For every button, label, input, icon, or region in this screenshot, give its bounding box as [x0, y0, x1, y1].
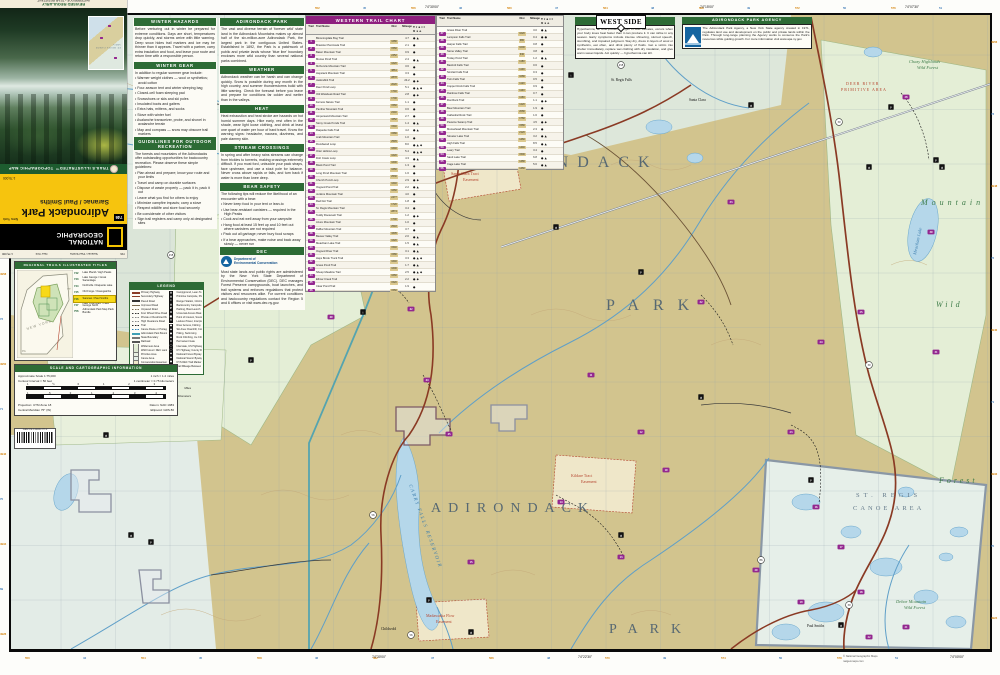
trail-use-icons: ●▲	[413, 249, 435, 253]
barcode-lines	[17, 432, 53, 443]
scale-tick: 3	[154, 383, 155, 386]
trail-mileage: 1.1	[529, 99, 541, 102]
trail-row: 4Moose Pond Trail16202.4●▲	[306, 56, 435, 63]
trail-mileage: 3.6	[401, 65, 413, 68]
section-body: Most state lands and public rights are a…	[220, 268, 304, 308]
trail-use-icons: ●	[413, 43, 435, 47]
snippet-label: ST. REGIS CANOE AREA	[89, 43, 121, 49]
svg-text:PRIMITIVE AREA: PRIMITIVE AREA	[841, 87, 887, 92]
trail-row: 13Stony Creek Ponds Trail15401.4●▲	[306, 120, 435, 127]
route-number: 56	[372, 513, 376, 517]
svg-text:Wild Forest: Wild Forest	[904, 605, 926, 610]
pa-label: PA	[22, 349, 26, 353]
spine-region: New York	[36, 252, 48, 256]
trail-mileage: 1.9	[529, 107, 541, 110]
trail-name: Twin Falls Trail	[447, 78, 515, 81]
trail-mileage: 3.3	[401, 257, 413, 260]
legend-swatch	[131, 329, 140, 330]
trail-name: Deer Pond Loop	[316, 86, 387, 89]
trail-use-icons: ●▲	[413, 58, 435, 62]
trail-mileage: 4.3	[401, 157, 413, 160]
trail-row: 41Tooley Pond Trail11801.2●▲	[437, 55, 563, 62]
trail-badge-number: 28	[904, 95, 908, 99]
section-body: Heat exhaustion and heat stroke are haza…	[220, 113, 304, 144]
trail-name: Red Dot Trail	[316, 200, 387, 203]
poi-glyph: P	[890, 105, 892, 109]
legend-label: Permanent Gate	[177, 340, 195, 343]
trail-mileage: 4.5	[529, 121, 541, 124]
trail-name: Church Pond Loop	[316, 179, 387, 182]
trail-row: 44Twin Falls Trail11200.5●	[437, 77, 563, 84]
trail-row: 35Elbow Creek Trail15202.2●◆	[306, 276, 435, 283]
svg-text:Easement: Easement	[436, 619, 452, 624]
trail-mileage: 3.0	[529, 29, 541, 32]
trail-row: 34Sheep Meadow Trail16602.5●▲◆	[306, 269, 435, 276]
durability-note: WATERPROOF • TEAR-RESISTANT	[0, 0, 127, 2]
svg-text:St. Regis Falls: St. Regis Falls	[611, 78, 632, 82]
trail-number-badge: 56	[439, 167, 446, 171]
trail-use-icons: ●	[541, 49, 563, 53]
title-number: 744	[74, 285, 81, 288]
km-unit: Kilometers	[178, 394, 191, 398]
trail-name: St. Regis Mountain Trail	[316, 207, 387, 210]
title-number: 745	[74, 291, 81, 294]
trail-badge-number: 10	[664, 468, 668, 472]
section-header: ADIRONDACK PARK	[220, 18, 304, 26]
trail-use-icons: ●	[413, 221, 435, 225]
grid-tick-label: 4948	[991, 184, 997, 188]
map-number-badge: 746	[114, 214, 124, 221]
trail-mileage: 1.1	[401, 101, 413, 104]
series-type: TOPOGRAPHIC MAP	[9, 167, 54, 172]
poi-glyph: ▲	[619, 533, 622, 537]
poi-glyph: i	[363, 310, 364, 314]
map-cover: 746 Saranac / Paul Smiths New York 1:75,…	[0, 0, 127, 258]
trail-row: 9Old Wawbeek Road Trail17002.8●◆	[306, 92, 435, 99]
trail-chart-header: TrailTrail NameDistMileageTrail Use	[437, 16, 563, 27]
legend-label: National Forest Byway	[177, 353, 202, 356]
trail-name: Grass Pond Trail	[316, 264, 387, 267]
column-header: Trail Use	[413, 25, 435, 33]
guideline-item: • Plan ahead and prepare; know your rout…	[134, 171, 216, 181]
trail-use-icons: ●◆	[413, 178, 435, 182]
trail-row: 53High Falls Trail14408.5●▲	[437, 141, 563, 148]
bullet-list: • Warmer weight clothes — wool or synthe…	[134, 76, 216, 137]
section-header: GUIDELINES FOR OUTDOOR RECREATION	[134, 137, 216, 150]
trail-badge-number: 40	[329, 315, 333, 319]
trail-use-icons: ●▲	[541, 142, 563, 146]
bear-tip-item: • If a bear approaches, make noise and b…	[220, 238, 304, 248]
trail-mileage: 0.9	[401, 51, 413, 54]
trail-use-icons: ●	[541, 127, 563, 131]
trail-use-icons: ●	[541, 149, 563, 153]
coordinate-label: 74°15'00"	[700, 5, 714, 9]
cover-spine: 746 Saranac / Paul Smiths New York 1:75,…	[0, 250, 127, 258]
trail-name: Jackrabbit Trail	[316, 79, 387, 82]
grid-tick-label: 576	[891, 6, 896, 10]
trail-row: 23Jenkins Mountain Trail24774.0●	[306, 191, 435, 198]
legend-label: Universal Access Boat Launch	[177, 312, 203, 315]
legend-swatch	[131, 325, 140, 326]
trail-badge-number: 19	[799, 600, 803, 604]
trail-mileage: 5.4	[401, 150, 413, 153]
map-sheet: ADIRONDACK PARK ADIRONDACK PARK White Hi…	[0, 0, 1000, 675]
regional-title-row: 756Adirondack Park Map Pack Bundle	[74, 309, 115, 315]
trail-name: Baker Mountain Trail	[316, 51, 387, 54]
trail-row: 11Panther Mountain Trail22400.6●	[306, 106, 435, 113]
poi-glyph: i	[571, 73, 572, 77]
svg-text:Wild: Wild	[936, 300, 963, 309]
trail-mileage: 5.6	[529, 163, 541, 166]
grid-tick-label: 4940	[991, 328, 997, 332]
grid-tick-label: 4934	[0, 542, 6, 546]
trail-name: Sheep Meadow Trail	[316, 271, 387, 274]
grid-tick-label: 566	[489, 656, 494, 660]
gear-item: • Avalanche transceiver, probe, and shov…	[134, 118, 216, 128]
approx-scale: Approximate Scale 1:75,000	[18, 374, 56, 378]
column-header: Trail Use	[541, 17, 563, 25]
trail-name: Peavine Swamp Trail	[447, 121, 515, 124]
poi-glyph: ▲	[699, 395, 702, 399]
coordinate-label: 74°30'00"	[425, 5, 439, 9]
legend-swatch	[131, 300, 140, 301]
grid-tick-label: 4932	[991, 472, 997, 476]
legend-header: LEGEND	[130, 283, 203, 290]
trail-badge-number: 18	[859, 590, 863, 594]
trail-badge-number: 23	[789, 430, 793, 434]
trail-mileage: 2.1	[401, 44, 413, 47]
trail-use-icons: ●▲	[413, 263, 435, 267]
trail-mileage: 0.5	[529, 78, 541, 81]
trail-use-icons: ●▲	[413, 36, 435, 40]
coordinate-label: 74°30'00"	[372, 655, 386, 659]
trail-row: 51Moosehead Mountain Trail21202.3●	[437, 126, 563, 133]
section-body: Before venturing out in winter be prepar…	[134, 26, 216, 62]
trail-mileage: 1.3	[401, 164, 413, 167]
section-header: ADIRONDACK PARK AGENCY	[682, 17, 812, 24]
natgeo-frame-icon	[107, 227, 123, 247]
trail-mileage: 2.7	[401, 115, 413, 118]
trail-mileage: 4.7	[401, 37, 413, 40]
trail-badge-number: 25	[859, 310, 863, 314]
trail-row: 25St. Regis Mountain Trail28743.4●	[306, 205, 435, 212]
miles-unit: Miles	[184, 386, 191, 390]
legend-swatch	[131, 305, 140, 306]
trail-name: Meacham Lake Trail	[316, 242, 387, 245]
regional-titles-list: 742Lake Placid / High Peaks743Lake Georg…	[73, 270, 115, 358]
section-body: The vast and diverse terrain of 'forever…	[220, 26, 304, 66]
legend-label: Improved Road	[141, 304, 158, 307]
grid-tick-label: 70	[991, 544, 994, 548]
poi-glyph: ▲	[867, 165, 870, 169]
route-number: 30	[838, 120, 842, 124]
scale-tick: 1	[103, 383, 104, 386]
trail-use-icons: ●	[413, 164, 435, 168]
guideline-item: • Sign trail registers and camp only at …	[134, 217, 216, 227]
legend-label: River Access, Fishing	[177, 324, 201, 327]
ellipsoid: Ellipsoid: GRS 80	[150, 408, 174, 412]
grid-tick-label: 69	[0, 587, 3, 591]
trail-use-icons: ●	[541, 85, 563, 89]
trail-badge-number: 30	[929, 230, 933, 234]
trail-badge-number: 17	[839, 545, 843, 549]
legend-swatch	[131, 292, 140, 294]
scale-tick: 3	[134, 392, 135, 395]
trail-name: Floodwood Loop	[316, 143, 387, 146]
trail-chart-banner: WESTERN TRAIL CHART	[306, 16, 435, 24]
grid-tick-label: 47	[431, 656, 434, 660]
trail-use-icons: ●	[413, 285, 435, 289]
trail-badge-number: 16	[814, 505, 818, 509]
dec-org-name: Department of Environmental Conservation	[234, 258, 277, 265]
trail-use-icons: ●▲	[541, 28, 563, 32]
svg-text:Forest: Forest	[938, 476, 978, 485]
trail-row: 7Jackrabbit Trail202024.2●◆	[306, 78, 435, 85]
trail-badge-number: 15	[469, 560, 473, 564]
grid-tick-label: 574	[721, 656, 726, 660]
trail-use-icons: ●◆	[541, 99, 563, 103]
legend-label: Rock Climbing, Ice Climbing	[177, 336, 203, 339]
trail-row: 38Lampson Falls Trail9800.4●●	[437, 34, 563, 41]
legend-label: Hiking, Swimming	[177, 332, 197, 335]
scale-tick: 0	[70, 392, 71, 395]
trail-mileage: 1.4	[401, 122, 413, 125]
natgeo-wordmark: NATIONAL GEOGRAPHIC	[56, 230, 103, 243]
trail-use-icons: ●◆	[413, 214, 435, 218]
series-name: TRAILS ILLUSTRATED™	[55, 167, 108, 172]
trail-name: Stony Creek Ponds Trail	[316, 122, 387, 125]
scale-tick: 1	[91, 392, 92, 395]
trail-name: Flat Rock Trail	[447, 99, 515, 102]
trail-row: 26Teddy Roosevelt Trail17001.2●◆	[306, 213, 435, 220]
grid-tick-label: 49	[663, 656, 666, 660]
park-name-label: PARK	[606, 297, 703, 314]
grid-tick-label: 48	[547, 656, 550, 660]
cover-title: Adirondack Park	[4, 206, 109, 218]
legend-label: High Clearance Road	[141, 320, 165, 323]
scale-tick: ½	[52, 383, 54, 386]
trail-mileage: 1.0	[401, 136, 413, 139]
apa-logo-icon	[685, 27, 701, 47]
trail-badge-number: 12	[639, 430, 643, 434]
coordinate-label: 74°07'30"	[905, 5, 919, 9]
section-intro: The following tips will reduce the likel…	[220, 191, 304, 203]
trail-name: Grass River Trail	[447, 29, 515, 32]
legend-swatch	[131, 341, 140, 342]
trail-use-icons: ●◆	[541, 120, 563, 124]
scale-tick: 0	[78, 383, 79, 386]
trail-badge-number: 31	[934, 350, 938, 354]
legend-swatch	[131, 333, 140, 335]
trail-row: 46Rainbow Falls Trail11600.7●	[437, 91, 563, 98]
trail-use-icons: ●▲◆	[413, 150, 435, 154]
trail-name: Copper Rock Falls Trail	[447, 85, 515, 88]
grid-tick-label: 4926	[0, 632, 6, 636]
lowland-area	[11, 427, 216, 649]
series-band: TRAILS ILLUSTRATED™ TOPOGRAPHIC MAP	[0, 164, 127, 174]
poi-glyph: ▲	[940, 165, 943, 169]
canoe-area-label: CANOE AREA	[853, 505, 924, 512]
legend-label: Trail	[141, 324, 146, 327]
scale-tick: 2	[113, 392, 114, 395]
trail-mileage: 24.2	[401, 79, 413, 82]
trail-name: Jenkins Mountain Trail	[316, 193, 387, 196]
trail-use-icons: ●▲	[413, 235, 435, 239]
section-body: In spring and after heavy rains streams …	[220, 152, 304, 183]
trail-mileage: 0.7	[529, 92, 541, 95]
legend-icon-column: ▲Campground, Lean-To▲Primitive Campsite,…	[167, 291, 203, 373]
inch-equiv: 1 inch = 1.2 miles	[151, 374, 174, 378]
info-column-1: WINTER HAZARDS Before venturing out in w…	[133, 18, 217, 229]
cover-map-snippet: ST. REGIS CANOE AREA	[88, 16, 124, 70]
poi-glyph: ▲	[839, 623, 842, 627]
column-header: Trail Name	[447, 17, 515, 25]
trail-mileage: 1.7	[401, 264, 413, 267]
poi-glyph: ▲	[104, 433, 107, 437]
poi-glyph: P	[428, 598, 430, 602]
trail-use-icons: ●▲◆	[413, 256, 435, 260]
trail-name: Lampson Falls Trail	[447, 36, 515, 39]
trail-use-icons: ●▲◆	[413, 270, 435, 274]
trail-row: 6Haystack Mountain Trail28783.3●	[306, 71, 435, 78]
grid-tick-label: 564	[603, 6, 608, 10]
map-credit: © National Geographic Maps	[843, 655, 878, 658]
trail-mileage: 0.6	[401, 108, 413, 111]
grid-tick-label: 72	[991, 256, 994, 260]
legend-swatch	[131, 309, 140, 310]
grid-tick-label: 46	[315, 656, 318, 660]
legend-label: Lookout Tower, Interpretive Trail	[177, 320, 203, 323]
trail-name: Cage Lake Trail	[447, 163, 515, 166]
grid-tick-label: 50	[779, 656, 782, 660]
scale-tick: 1	[27, 383, 28, 386]
trail-name: Osgood River Trail	[316, 250, 387, 253]
trail-name: Rainbow Falls Trail	[447, 92, 515, 95]
cover-subtitle: Saranac / Paul Smiths	[4, 198, 109, 205]
trail-use-icons: ●	[413, 114, 435, 118]
poi-glyph: P	[810, 478, 812, 482]
svg-text:Madawaska Flow: Madawaska Flow	[426, 613, 454, 618]
trail-number: 36	[306, 278, 316, 296]
trail-mileage: 8.5	[529, 142, 541, 145]
grid-tick-label: 70	[0, 497, 3, 501]
legend-label: Interstate, US Highway	[177, 345, 203, 348]
trail-mileage: 3.1	[401, 250, 413, 253]
title-name: Lake George / Great Sacandaga	[83, 277, 115, 282]
trail-name: Harper Falls Trail	[447, 43, 515, 46]
trail-mileage: 0.6	[529, 64, 541, 67]
trail-row: 36Clear Pond Trail15601.9●	[306, 283, 435, 290]
trail-use-icons: ●▲	[541, 156, 563, 160]
poi-glyph: ▲	[749, 103, 752, 107]
grid-tick-label: 4942	[0, 452, 6, 456]
grid-tick-label: 560	[507, 6, 512, 10]
trail-badge-number: 11	[590, 373, 593, 377]
trail-use-icons: ●	[541, 106, 563, 110]
grid-tick-label: 554	[141, 656, 146, 660]
trail-mileage: 0.9	[529, 85, 541, 88]
dist-chip: 1560	[390, 289, 398, 293]
trail-name: Panther Mountain Trail	[316, 108, 387, 111]
legend-label: Canoe Route or Portage	[141, 328, 167, 331]
trail-row: 56Cage Lake Trail14605.6●▲	[437, 162, 563, 169]
title-name: Old Forge / Oswegatchie	[83, 291, 112, 294]
svg-text:Childwold: Childwold	[381, 627, 396, 631]
trail-row: 43Sinclair Falls Trail10800.3●	[437, 70, 563, 77]
legend-label: Four Wheel Drive Road	[141, 312, 167, 315]
trail-row: 27Azure Mountain Trail25181.0●	[306, 220, 435, 227]
trail-row: 2Brewster Peninsula Trail15602.1●	[306, 42, 435, 49]
grid-tick-label: 72	[0, 317, 3, 321]
grid-tick-label: 558	[257, 656, 262, 660]
bullet-list: • Never keep food in your tent or lean-t…	[220, 202, 304, 247]
trail-use-icons: ●	[413, 65, 435, 69]
trail-name: Moosehead Mountain Trail	[447, 128, 515, 131]
trail-row: 5McKenzie Mountain Trail38613.6●	[306, 64, 435, 71]
section-header: DEC	[220, 247, 304, 255]
trail-use-icons: ●	[541, 113, 563, 117]
trail-mileage: 1.9	[401, 285, 413, 288]
dist-chip: 1460	[518, 167, 526, 171]
grid-tick-label: 48	[651, 6, 654, 10]
title-name: Lake Placid / High Peaks	[83, 272, 112, 275]
cover-scale: 1:75,000	[3, 176, 15, 180]
trail-row: 50Peavine Swamp Trail15804.5●◆	[437, 119, 563, 126]
trail-mileage: 4.0	[401, 193, 413, 196]
section-header: HEAT	[220, 105, 304, 113]
svg-text:Easement: Easement	[463, 177, 479, 182]
route-number: 30	[868, 363, 872, 367]
grid-tick-label: 50	[843, 6, 846, 10]
title-name: Northville / Raquette Lake	[83, 285, 113, 288]
legend-label: NY Highway, County Road	[177, 349, 203, 352]
trail-name: Fernow Nature Trail	[316, 101, 387, 104]
trail-badge-number: 44	[425, 378, 429, 382]
trail-use-icons: ●	[413, 228, 435, 232]
trail-badge-number: 32	[699, 300, 703, 304]
trail-row: 8Deer Pond Loop17405.1●▲◆	[306, 85, 435, 92]
section-header: BEAR SAFETY	[220, 183, 304, 191]
title-number: 743	[74, 278, 81, 281]
park-name-label: PARK	[609, 622, 693, 637]
datum: Datum: NAD 1983	[150, 403, 174, 407]
trail-use-icons: ●▲	[541, 56, 563, 60]
trail-row: 24Red Dot Trail17201.8●	[306, 198, 435, 205]
trail-row: 40Stone Valley Trail9403.8●	[437, 48, 563, 55]
trail-use-icons: ●	[541, 78, 563, 82]
cover-state: New York	[3, 217, 18, 221]
grid-tick-label: 572	[795, 6, 800, 10]
western-trail-chart-right: TrailTrail NameDistMileageTrail Use37Gra…	[436, 15, 564, 170]
title-number: 756	[74, 310, 81, 313]
title-name: Adirondack Park Map Pack Bundle	[83, 309, 115, 314]
trail-row: 48Bear Mountain Trail20801.9●	[437, 105, 563, 112]
trail-use-icons: ●	[413, 107, 435, 111]
grid-tick-label: 4950	[0, 362, 6, 366]
info-column-2: ADIRONDACK PARK The vast and diverse ter…	[219, 18, 305, 310]
gear-item: • Warmer weight clothes — wool or synthe…	[134, 76, 216, 86]
scale-panel: SCALE AND CARTOGRAPHIC INFORMATION Appro…	[14, 364, 178, 416]
trail-name: Black Pond Trail	[316, 164, 387, 167]
grid-tick-label: 4958	[0, 272, 6, 276]
trail-name: Elbow Creek Trail	[316, 278, 387, 281]
title-name: Saranac / Paul Smiths	[83, 298, 109, 301]
series-emblem-icon	[111, 165, 119, 173]
section-header: WEATHER	[220, 66, 304, 74]
trail-name: Tooley Pond Trail	[447, 57, 515, 60]
trail-mileage: 1.0	[401, 221, 413, 224]
poi-glyph: P	[150, 540, 152, 544]
